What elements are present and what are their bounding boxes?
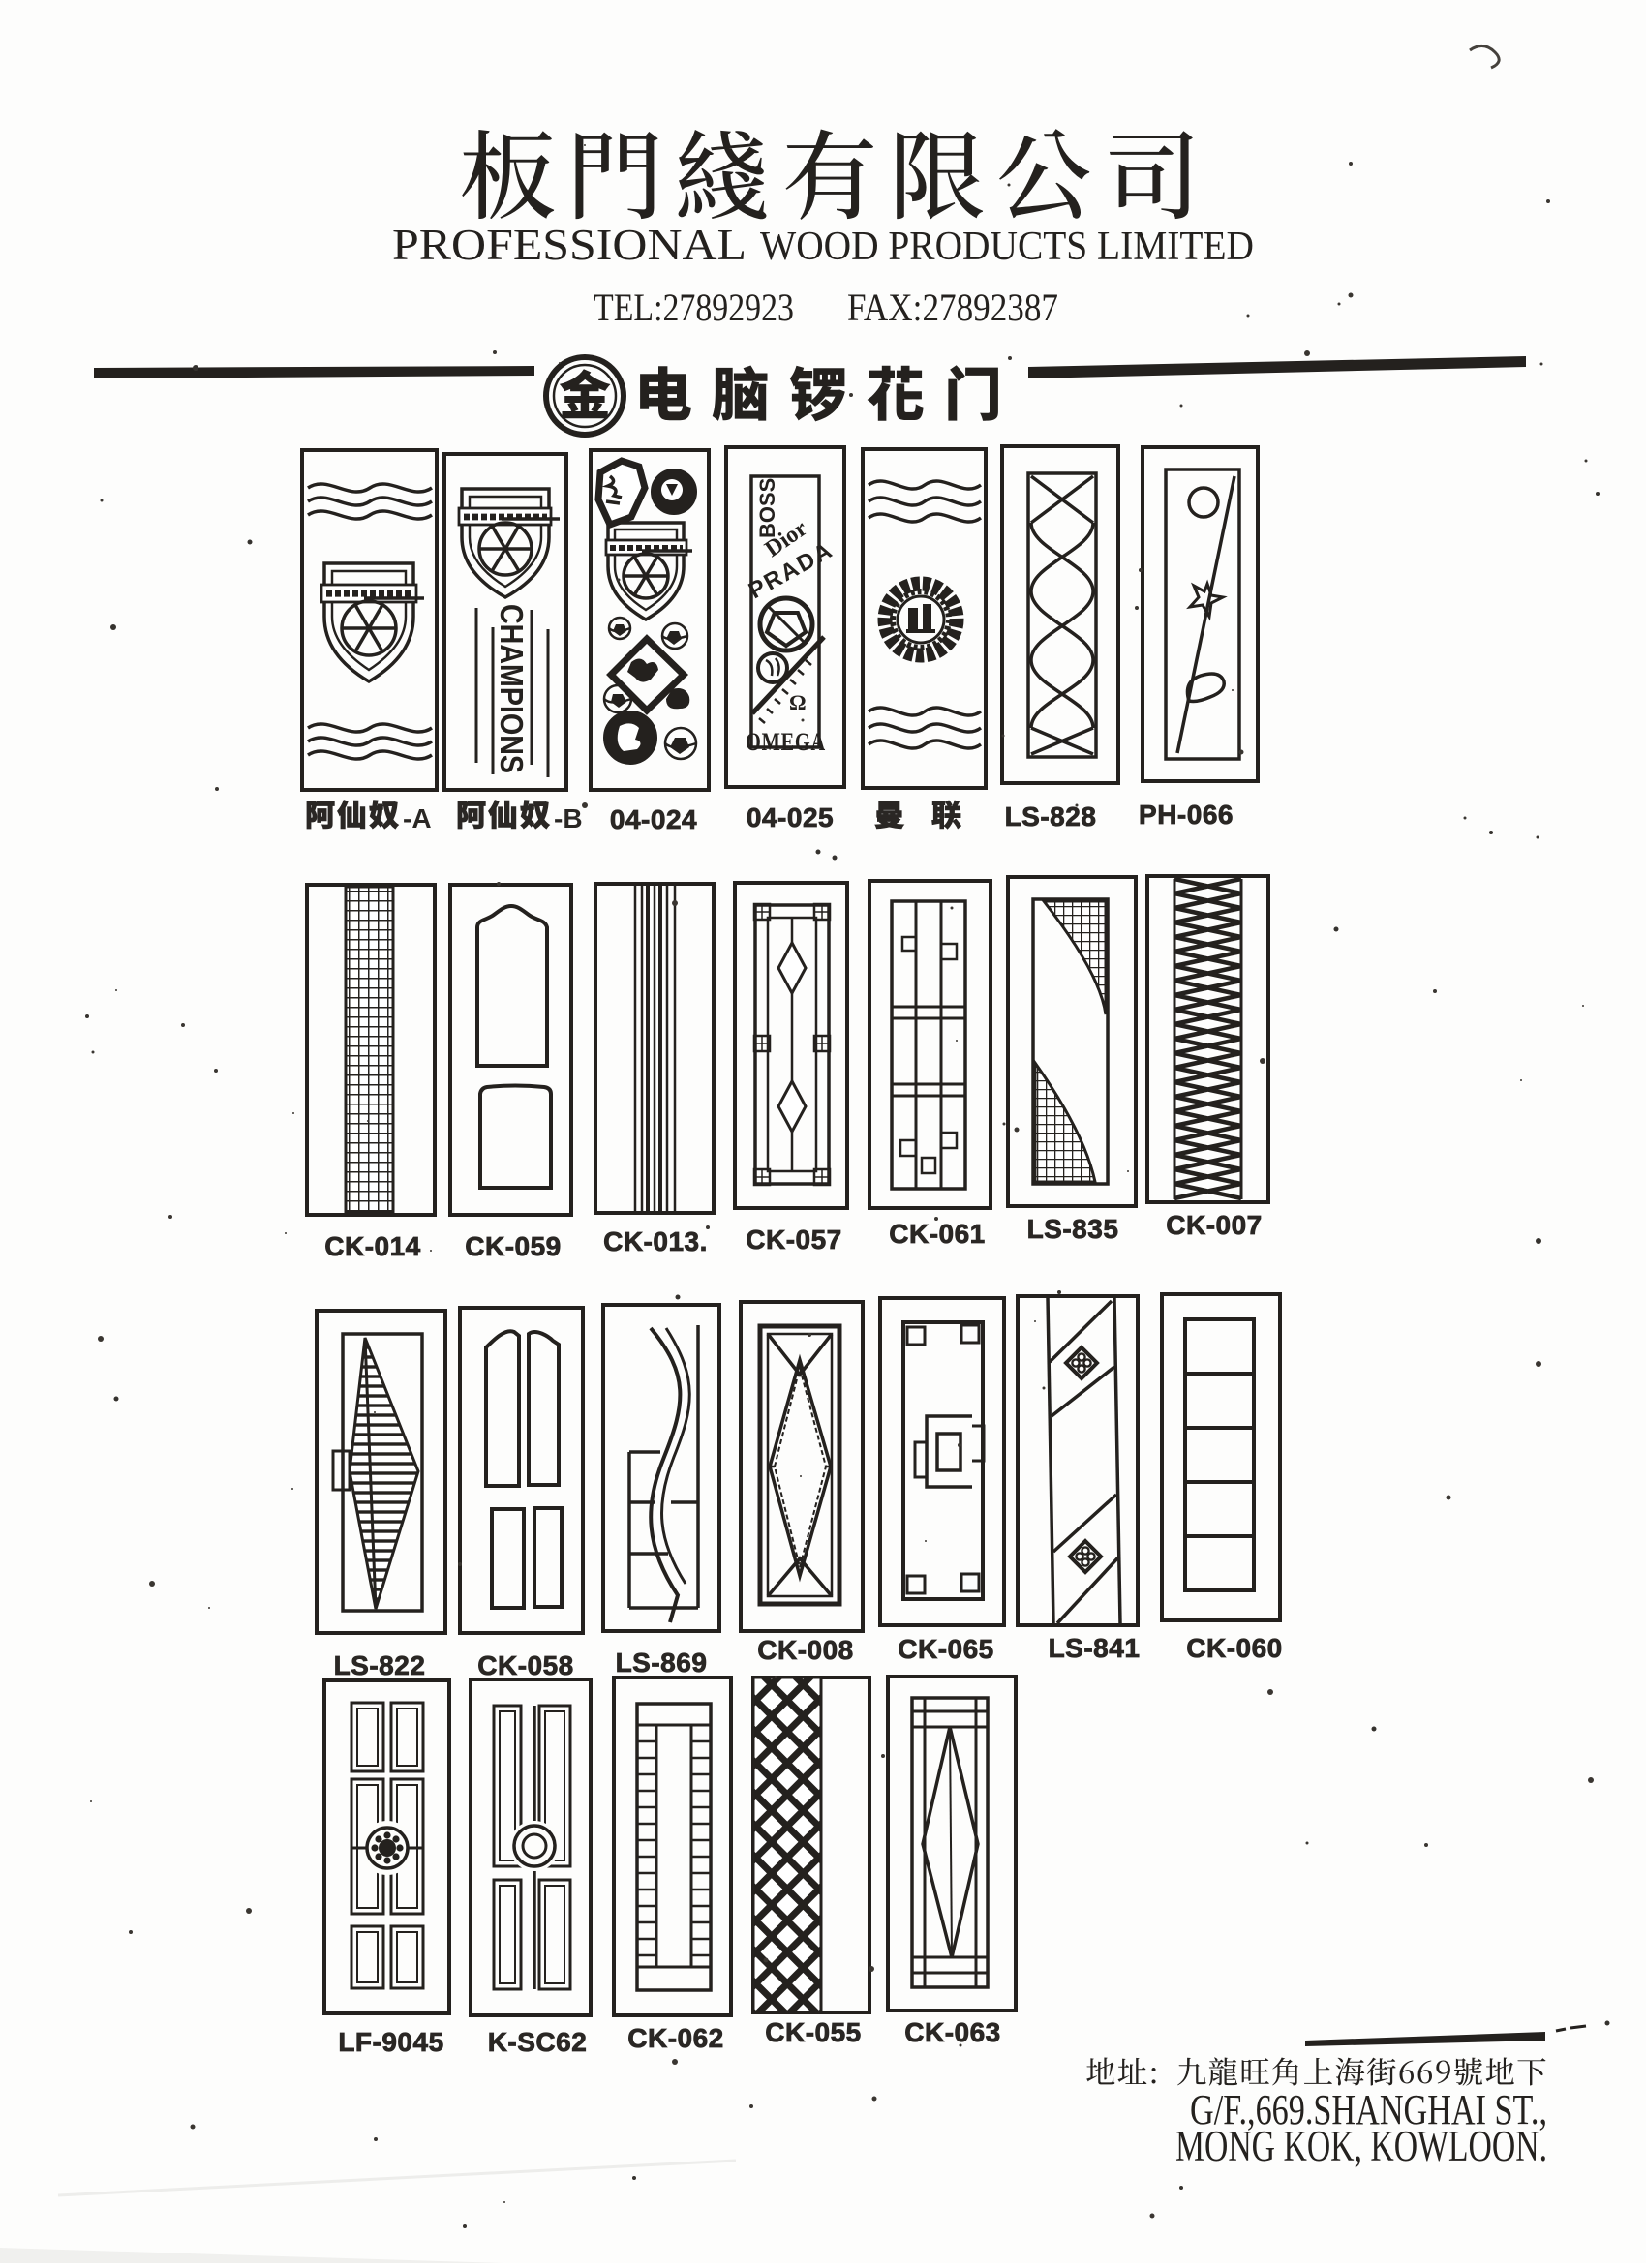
svg-text:CK-065: CK-065: [898, 1634, 993, 1664]
svg-text:PROFESSIONAL: PROFESSIONAL: [392, 220, 747, 269]
svg-text:CK-007: CK-007: [1166, 1210, 1262, 1240]
svg-text:LS-828: LS-828: [1005, 801, 1097, 832]
svg-text:CHAMPIONS: CHAMPIONS: [494, 604, 530, 773]
svg-text:CK-059: CK-059: [465, 1231, 561, 1261]
svg-text:CK-014: CK-014: [324, 1231, 420, 1261]
svg-text:CK-063: CK-063: [904, 2017, 1000, 2047]
svg-text:CK-013.: CK-013.: [603, 1226, 708, 1256]
svg-text:LS-822: LS-822: [334, 1650, 426, 1680]
svg-text:LS-869: LS-869: [616, 1648, 708, 1678]
svg-text:CK-057: CK-057: [746, 1225, 841, 1255]
svg-text:CK-062: CK-062: [627, 2023, 723, 2053]
svg-text:Ω: Ω: [789, 690, 807, 714]
svg-text:LS-841: LS-841: [1049, 1633, 1141, 1663]
svg-text:LF-9045: LF-9045: [338, 2027, 443, 2057]
svg-text:04-025: 04-025: [747, 802, 834, 832]
svg-text:WOOD PRODUCTS LIMITED: WOOD PRODUCTS LIMITED: [760, 225, 1254, 269]
svg-text:CK-060: CK-060: [1186, 1633, 1282, 1663]
svg-text:K-SC62: K-SC62: [488, 2027, 588, 2057]
svg-text:FAX:27892387: FAX:27892387: [847, 286, 1058, 329]
svg-text:OMEGA: OMEGA: [746, 728, 826, 756]
svg-text:PH-066: PH-066: [1139, 800, 1234, 830]
svg-text:CK-061: CK-061: [889, 1219, 985, 1249]
svg-text:CK-055: CK-055: [765, 2017, 861, 2047]
svg-text:-B: -B: [554, 803, 583, 833]
svg-text:MONG KOK, KOWLOON.: MONG KOK, KOWLOON.: [1175, 2122, 1547, 2170]
svg-text:CK-058: CK-058: [477, 1650, 573, 1680]
svg-text:BOSS: BOSS: [755, 478, 779, 538]
svg-text:LS-835: LS-835: [1027, 1214, 1119, 1244]
svg-text:TEL:27892923: TEL:27892923: [594, 286, 794, 329]
svg-text:04-024: 04-024: [610, 804, 697, 834]
svg-text:CK-008: CK-008: [757, 1635, 853, 1665]
svg-text:-A: -A: [403, 803, 432, 833]
